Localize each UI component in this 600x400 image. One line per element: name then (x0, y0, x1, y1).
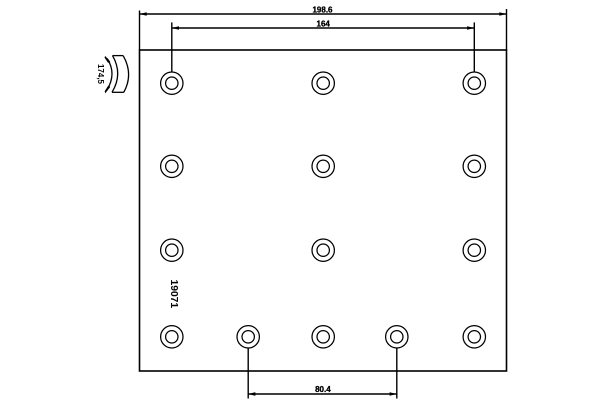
svg-text:174,5: 174,5 (96, 64, 105, 85)
svg-text:164: 164 (317, 19, 331, 28)
svg-text:19071: 19071 (168, 279, 179, 308)
svg-text:198.6: 198.6 (312, 5, 333, 14)
svg-text:80.4: 80.4 (315, 385, 331, 394)
